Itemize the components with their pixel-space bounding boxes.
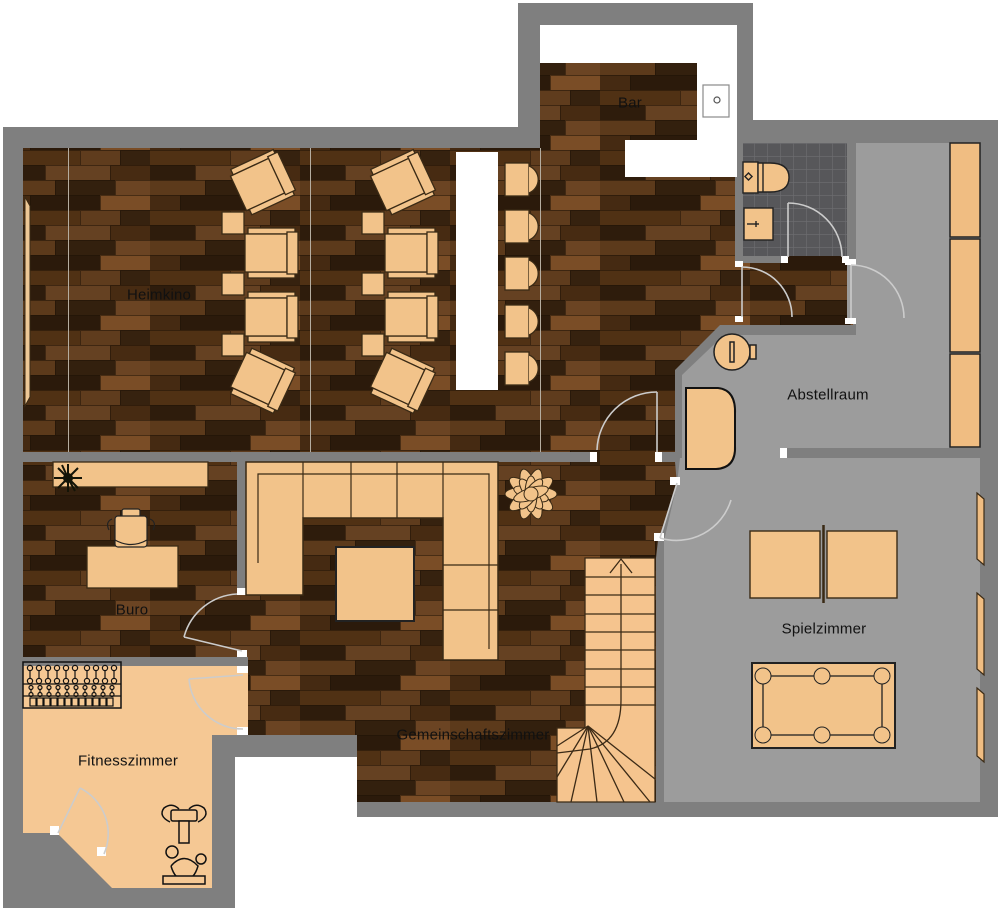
wall-shelves — [977, 493, 984, 762]
washbasin — [744, 208, 773, 240]
coffee-table — [336, 547, 414, 621]
bathroom-door-opening — [788, 256, 842, 263]
bar-counter-bottom — [625, 140, 737, 177]
label-heimkino: Heimkino — [127, 287, 191, 304]
desk — [87, 546, 178, 588]
floorplan-canvas: Heimkino Bar Abstellraum Buro Fitnesszim… — [0, 0, 1000, 910]
sideboard — [53, 462, 208, 487]
label-fitnesszimmer: Fitnesszimmer — [78, 753, 178, 770]
toilet — [743, 162, 789, 193]
label-bar: Bar — [618, 95, 642, 112]
fitness-door-opening — [237, 673, 248, 727]
label-spielzimmer: Spielzimmer — [782, 621, 867, 638]
floorplan-drawing — [0, 0, 1000, 910]
label-buro: Buro — [116, 602, 149, 619]
shelving-units — [950, 143, 980, 447]
table-tennis-table — [750, 525, 897, 603]
billiard-table — [752, 663, 895, 748]
label-gemeinschaftszimmer: Gemeinschaftszimmer — [396, 727, 549, 744]
floor-opening-wood — [597, 452, 655, 462]
label-abstellraum: Abstellraum — [787, 387, 868, 404]
plant-buro — [54, 464, 82, 492]
bar-sink — [703, 85, 729, 117]
projection-screen — [25, 197, 30, 406]
chest-cabinet — [686, 388, 735, 469]
bar-counter-top — [540, 25, 737, 63]
floor-corridor-wood — [735, 263, 853, 325]
counter-heimkino — [456, 152, 498, 390]
